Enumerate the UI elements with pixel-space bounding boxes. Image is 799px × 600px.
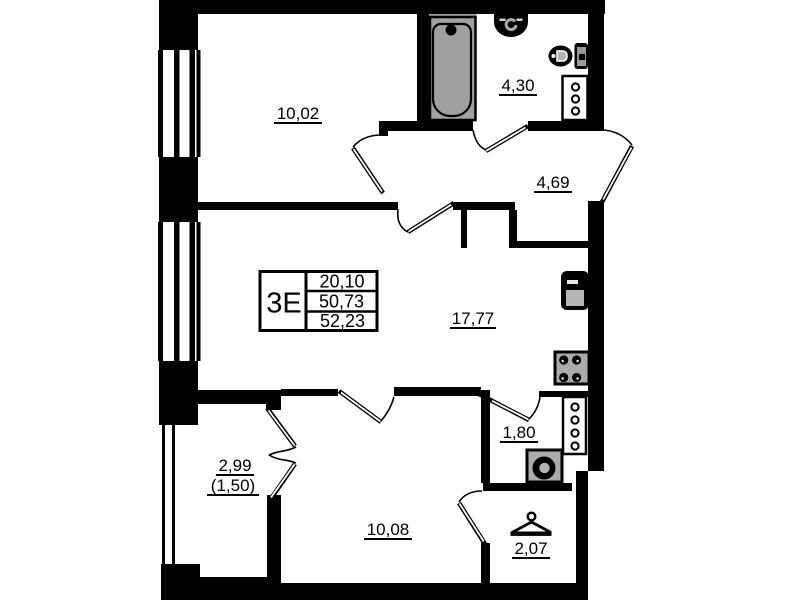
svg-text:4,69: 4,69 (536, 173, 569, 192)
svg-text:(1,50): (1,50) (211, 476, 255, 495)
svg-text:1,80: 1,80 (502, 423, 535, 442)
svg-text:10,02: 10,02 (277, 104, 320, 123)
svg-text:4,30: 4,30 (501, 76, 534, 95)
svg-text:20,10: 20,10 (319, 272, 364, 292)
svg-text:2,99: 2,99 (218, 456, 251, 475)
svg-text:52,23: 52,23 (320, 311, 365, 331)
svg-text:10,08: 10,08 (367, 520, 410, 539)
svg-text:50,73: 50,73 (319, 292, 364, 312)
svg-text:3Е: 3Е (266, 288, 301, 320)
svg-text:2,07: 2,07 (514, 539, 547, 558)
svg-text:17,77: 17,77 (452, 309, 495, 328)
